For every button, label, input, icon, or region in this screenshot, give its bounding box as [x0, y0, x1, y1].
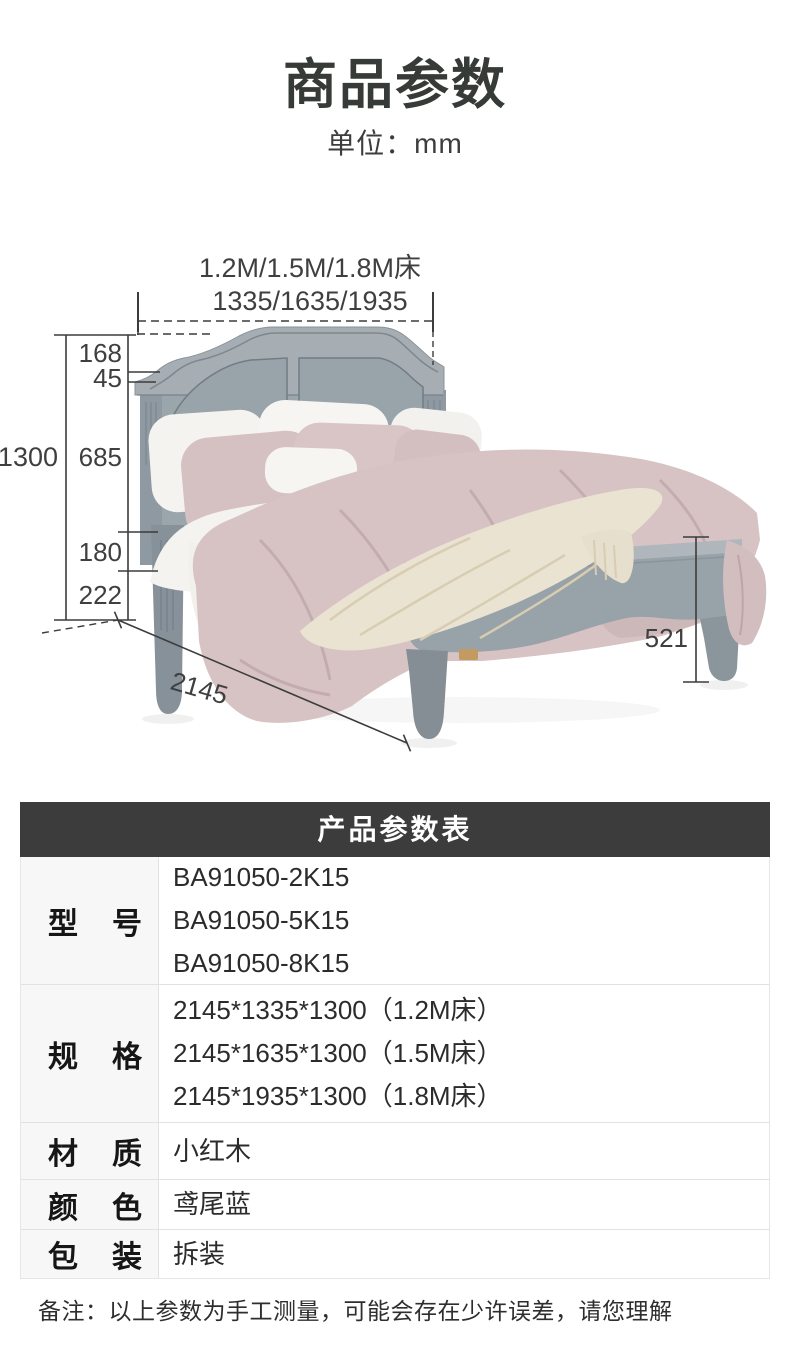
- measurement-note: 备注：以上参数为手工测量，可能会存在少许误差，请您理解: [38, 1292, 673, 1326]
- row-value-spec: 2145*1335*1300（1.2M床） 2145*1635*1300（1.5…: [159, 985, 769, 1122]
- table-row-color: 颜 色 鸢尾蓝: [21, 1180, 769, 1230]
- label-char: 号: [112, 899, 142, 943]
- label-char: 色: [112, 1183, 142, 1227]
- model-number: BA91050-5K15: [173, 899, 761, 942]
- row-value-color: 鸢尾蓝: [159, 1180, 769, 1229]
- bed-dimension-diagram: 1.2M/1.5M/1.8M床 1335/1635/1935 1300 168 …: [0, 240, 790, 770]
- model-number: BA91050-8K15: [173, 942, 761, 985]
- spec-value: 2145*1935*1300（1.8M床）: [173, 1075, 761, 1118]
- label-char: 规: [48, 1032, 78, 1076]
- row-label-packaging: 包 装: [21, 1230, 159, 1278]
- label-char: 包: [48, 1232, 78, 1276]
- center-support-foot: [459, 649, 478, 660]
- color-value: 鸢尾蓝: [173, 1183, 761, 1226]
- row-value-packaging: 拆装: [159, 1230, 769, 1278]
- dim-label-685: 685: [79, 442, 122, 472]
- bed-width-values-label: 1335/1635/1935: [212, 286, 407, 316]
- dim-label-521: 521: [645, 623, 688, 653]
- row-label-spec: 规 格: [21, 985, 159, 1122]
- row-label-material: 材 质: [21, 1123, 159, 1179]
- bed-size-label: 1.2M/1.5M/1.8M床: [199, 253, 421, 283]
- row-value-material: 小红木: [159, 1123, 769, 1179]
- table-row-model: 型 号 BA91050-2K15 BA91050-5K15 BA91050-8K…: [21, 857, 769, 985]
- row-label-color: 颜 色: [21, 1180, 159, 1229]
- front-left-leg: [406, 649, 448, 739]
- material-value: 小红木: [173, 1130, 761, 1173]
- dim-label-180: 180: [79, 537, 122, 567]
- dim-label-1300: 1300: [0, 442, 58, 472]
- page-title: 商品参数: [0, 40, 790, 119]
- row-value-model: BA91050-2K15 BA91050-5K15 BA91050-8K15: [159, 857, 769, 984]
- label-char: 装: [112, 1232, 142, 1276]
- spec-value: 2145*1635*1300（1.5M床）: [173, 1032, 761, 1075]
- duvet-right-drape: [723, 540, 766, 645]
- packaging-value: 拆装: [173, 1233, 761, 1276]
- product-parameter-table: 产品参数表 型 号 BA91050-2K15 BA91050-5K15 BA91…: [20, 802, 770, 1279]
- product-parameters-page: 商品参数 单位：mm: [0, 0, 790, 1368]
- unit-label: 单位：mm: [0, 122, 790, 162]
- table-row-spec: 规 格 2145*1335*1300（1.2M床） 2145*1635*1300…: [21, 985, 769, 1123]
- label-char: 格: [112, 1032, 142, 1076]
- label-char: 材: [48, 1129, 78, 1173]
- label-char: 颜: [48, 1183, 78, 1227]
- label-char: 质: [112, 1129, 142, 1173]
- label-char: 型: [48, 899, 78, 943]
- model-number: BA91050-2K15: [173, 856, 761, 899]
- dim-label-222: 222: [79, 580, 122, 610]
- table-row-material: 材 质 小红木: [21, 1123, 769, 1180]
- table-row-packaging: 包 装 拆装: [21, 1230, 769, 1278]
- table-header: 产品参数表: [20, 802, 770, 857]
- dim-label-45: 45: [93, 363, 122, 393]
- spec-value: 2145*1335*1300（1.2M床）: [173, 989, 761, 1032]
- row-label-model: 型 号: [21, 857, 159, 984]
